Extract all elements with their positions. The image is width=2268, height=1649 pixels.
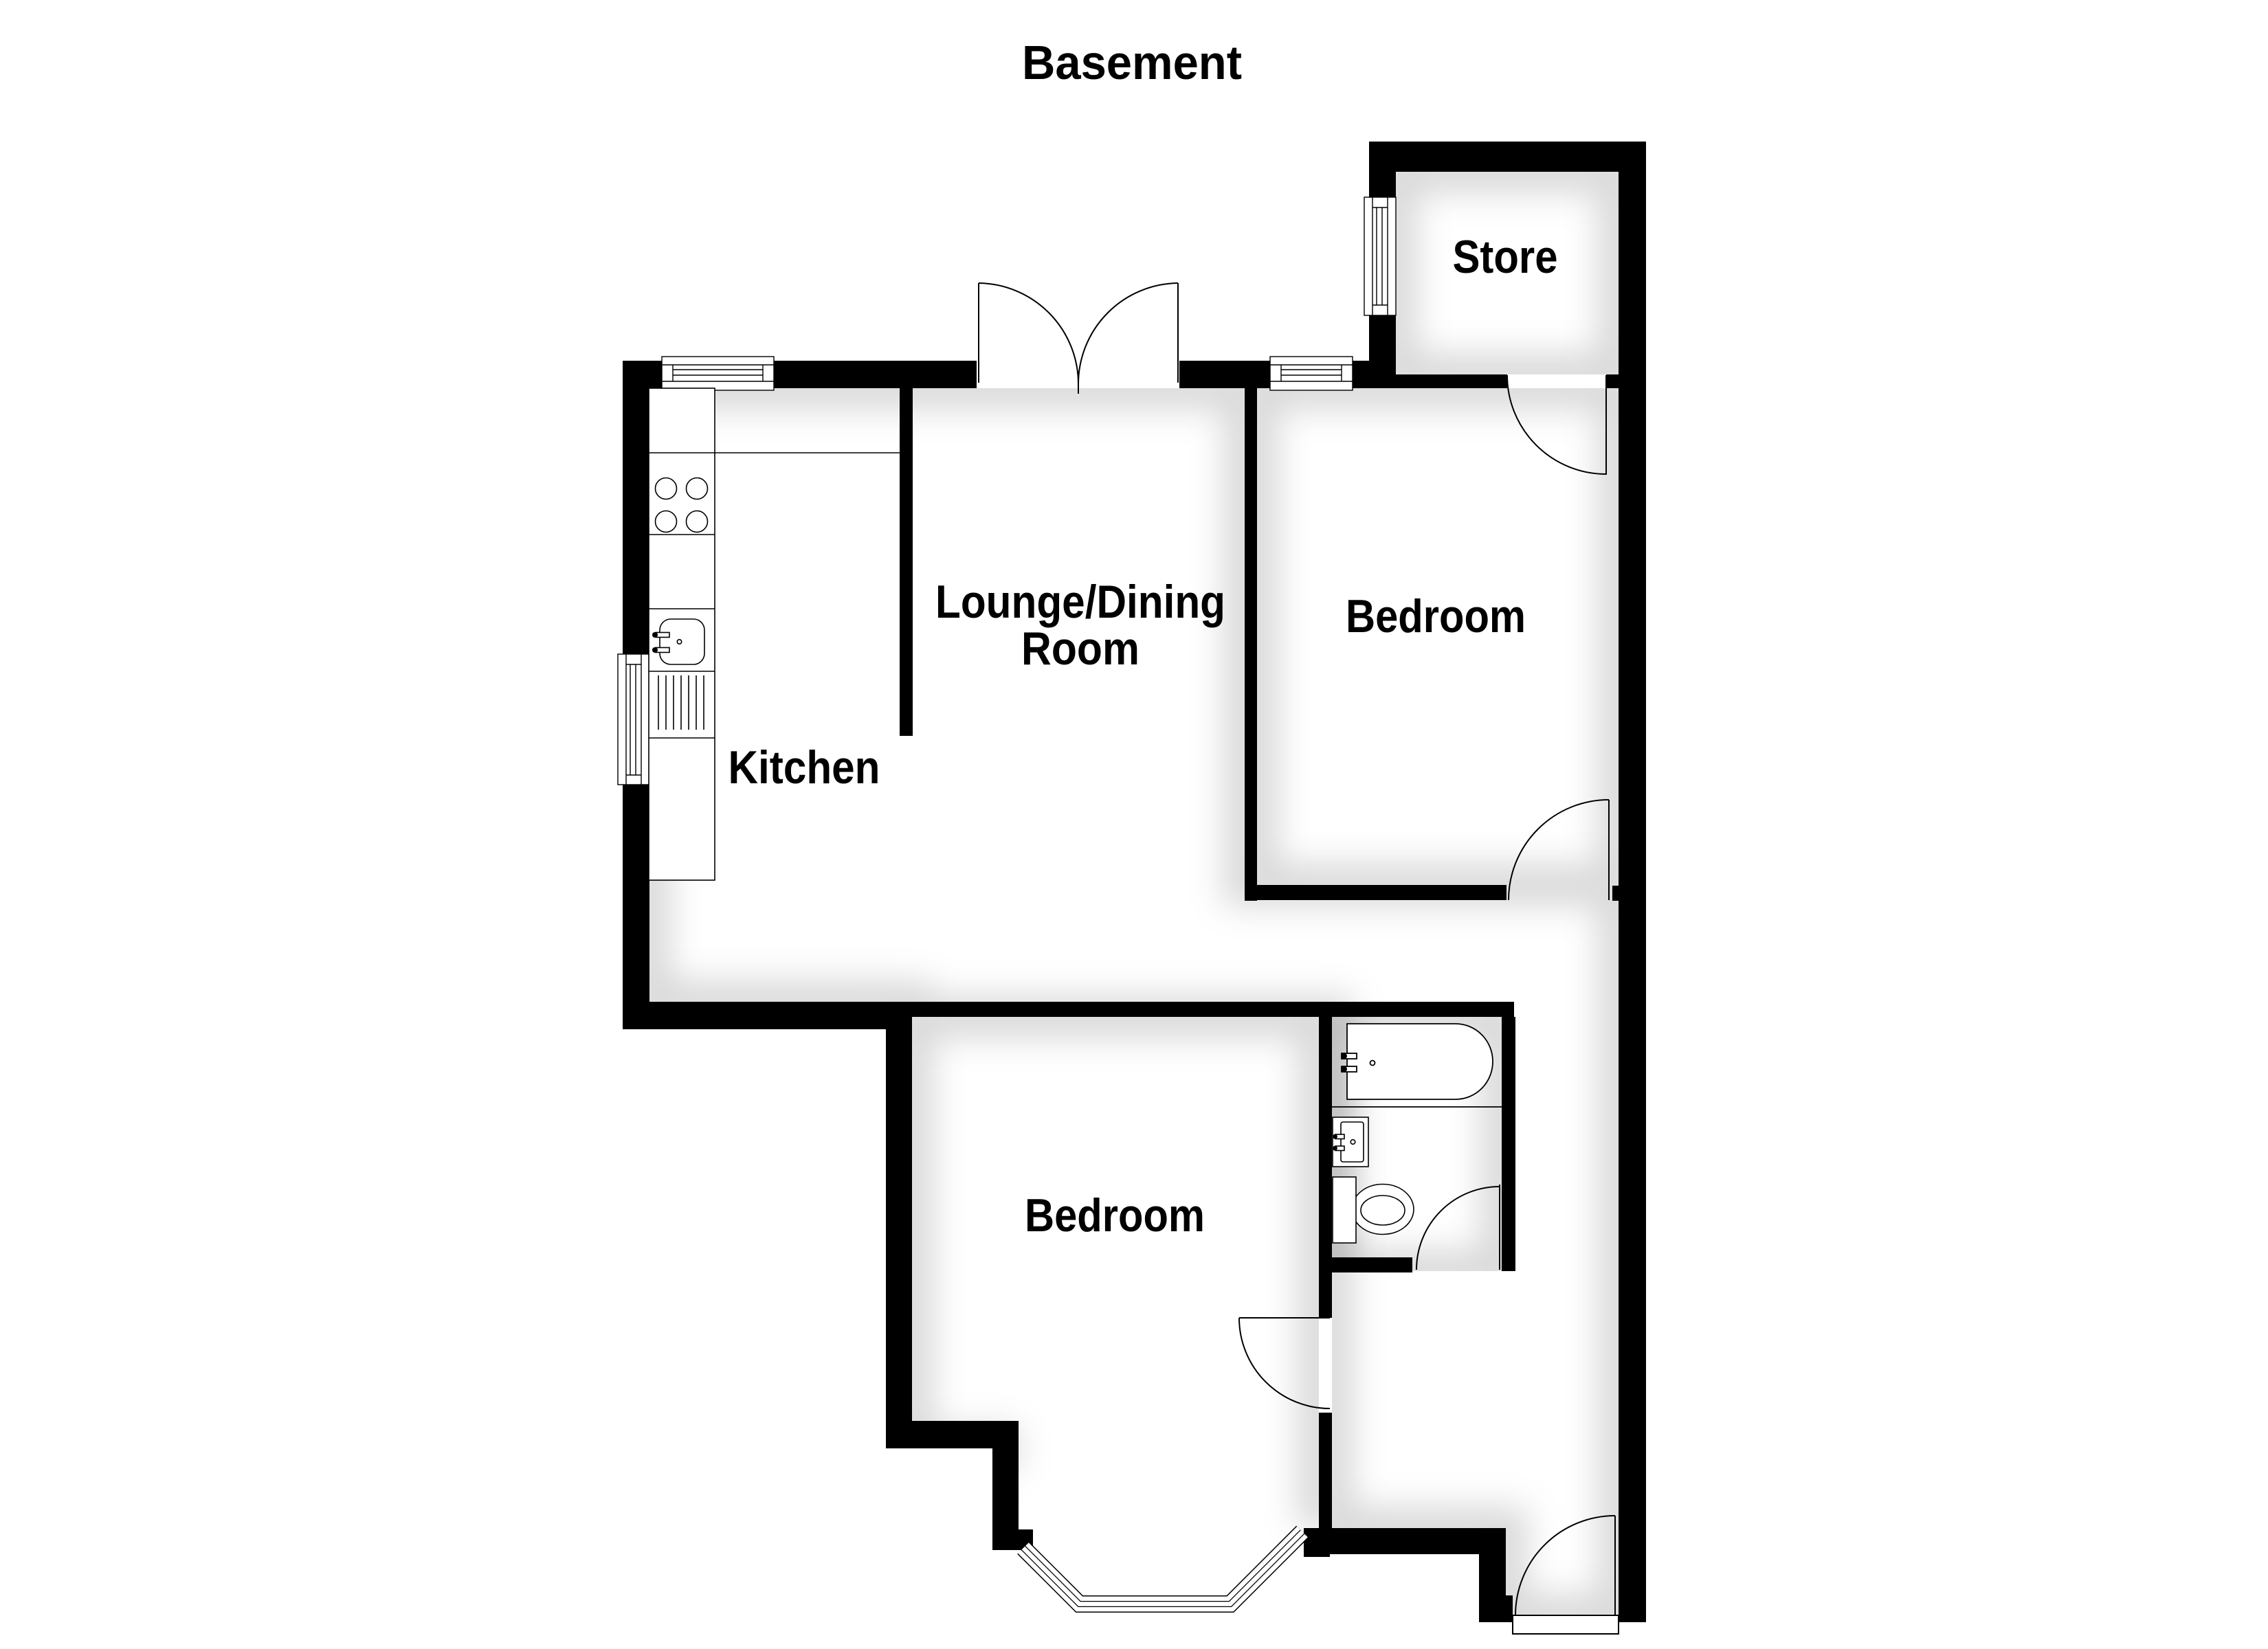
svg-text:Lounge/Dining: Lounge/Dining — [935, 576, 1225, 628]
svg-text:Kitchen: Kitchen — [729, 741, 880, 794]
svg-text:Bedroom: Bedroom — [1346, 590, 1526, 642]
svg-text:Bedroom: Bedroom — [1025, 1189, 1205, 1242]
svg-text:Basement: Basement — [1022, 36, 1242, 89]
svg-text:Store: Store — [1453, 231, 1558, 283]
svg-text:Room: Room — [1021, 622, 1139, 675]
